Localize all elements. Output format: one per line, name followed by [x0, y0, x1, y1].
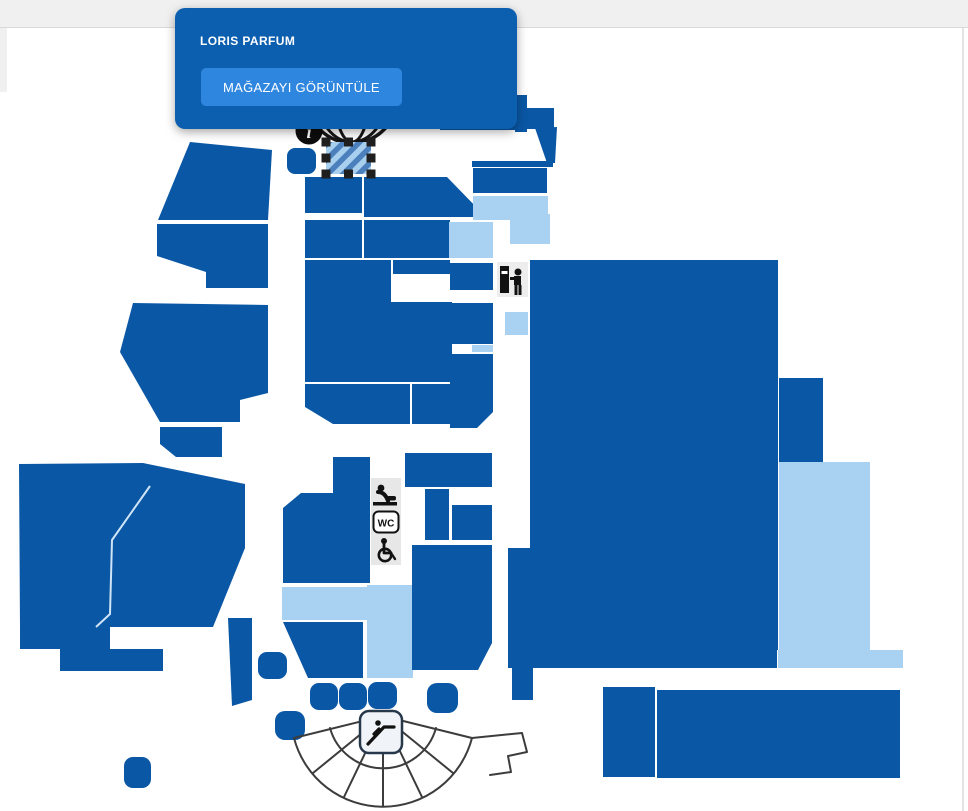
store-sw-step-a[interactable] — [20, 627, 110, 649]
wc-icon: WC — [374, 512, 399, 533]
store-name: LORIS PARFUM — [200, 34, 295, 48]
view-store-button[interactable]: MAĞAZAYI GÖRÜNTÜLE — [201, 68, 402, 106]
store-sw-step-b[interactable] — [60, 649, 163, 671]
store-sw-anchor[interactable] — [19, 463, 245, 627]
store-mid-light[interactable] — [282, 587, 367, 620]
store-cr-c[interactable] — [452, 505, 492, 540]
svg-text:WC: WC — [378, 519, 395, 530]
store-m4b[interactable] — [393, 260, 450, 274]
store-m5[interactable] — [450, 303, 493, 344]
selection-handle[interactable] — [344, 170, 353, 179]
corridor-light[interactable] — [367, 585, 413, 678]
store-nw-a[interactable] — [158, 142, 272, 220]
selection-handle[interactable] — [367, 138, 376, 147]
store-tr-c[interactable] — [535, 127, 557, 163]
kiosk-3[interactable] — [339, 683, 367, 710]
store-nw-b[interactable] — [157, 224, 268, 288]
selection-handle[interactable] — [322, 138, 331, 147]
store-se-b[interactable] — [657, 690, 900, 778]
kiosk-7[interactable] — [124, 757, 151, 788]
store-m-a[interactable] — [305, 220, 362, 258]
store-se-small[interactable] — [512, 668, 533, 700]
store-tr-b[interactable] — [526, 108, 554, 129]
store-cr-b[interactable] — [425, 489, 449, 540]
store-right-big[interactable] — [412, 545, 492, 670]
store-m-sliver[interactable] — [472, 345, 493, 352]
store-cr-a[interactable] — [405, 453, 492, 487]
store-se-a[interactable] — [603, 687, 655, 777]
kiosk-1[interactable] — [258, 652, 287, 679]
info-kiosk[interactable] — [287, 148, 316, 174]
store-w-d[interactable] — [160, 427, 222, 457]
store-light-sq[interactable] — [505, 312, 528, 335]
store-m9[interactable] — [412, 384, 450, 424]
store-anchor-light[interactable] — [779, 462, 870, 650]
store-bottom-light-strip[interactable] — [778, 650, 903, 668]
store-tr-light-b[interactable] — [510, 214, 550, 244]
store-m3[interactable] — [450, 263, 493, 290]
selected-store-layer — [322, 138, 376, 179]
store-m-b[interactable] — [364, 220, 450, 258]
selection-handle[interactable] — [344, 138, 353, 147]
selected-store[interactable] — [326, 142, 371, 174]
kiosk-2[interactable] — [310, 683, 338, 710]
store-tr-strip[interactable] — [472, 161, 553, 167]
kiosk-5[interactable] — [427, 683, 458, 713]
store-tooltip: LORIS PARFUM MAĞAZAYI GÖRÜNTÜLE — [175, 8, 517, 129]
mall-map-page: WC i — [0, 0, 968, 811]
left-edge-strip — [0, 28, 7, 92]
store-row1-l[interactable] — [305, 177, 362, 213]
store-m4[interactable] — [305, 260, 452, 382]
selection-handle[interactable] — [367, 154, 376, 163]
selection-handle[interactable] — [322, 154, 331, 163]
escalator-icon — [360, 711, 402, 753]
store-below-light[interactable] — [283, 622, 363, 678]
stores-layer — [19, 80, 903, 788]
selection-handle[interactable] — [367, 170, 376, 179]
store-row1-r[interactable] — [364, 177, 481, 217]
atm-icon — [497, 262, 528, 297]
kiosk-4[interactable] — [368, 682, 397, 709]
store-anchor[interactable] — [508, 260, 778, 668]
store-sw-tail[interactable] — [228, 618, 252, 706]
store-w-c[interactable] — [120, 303, 268, 422]
store-anchor-ext[interactable] — [779, 378, 823, 462]
store-m8[interactable] — [305, 384, 410, 424]
map-right-border — [962, 28, 964, 811]
store-m2-light[interactable] — [449, 222, 493, 258]
store-m7[interactable] — [450, 354, 493, 428]
store-col-left[interactable] — [283, 457, 370, 583]
amphitheater-outline — [294, 716, 527, 807]
store-tr-d[interactable] — [473, 168, 547, 193]
selection-handle[interactable] — [322, 170, 331, 179]
